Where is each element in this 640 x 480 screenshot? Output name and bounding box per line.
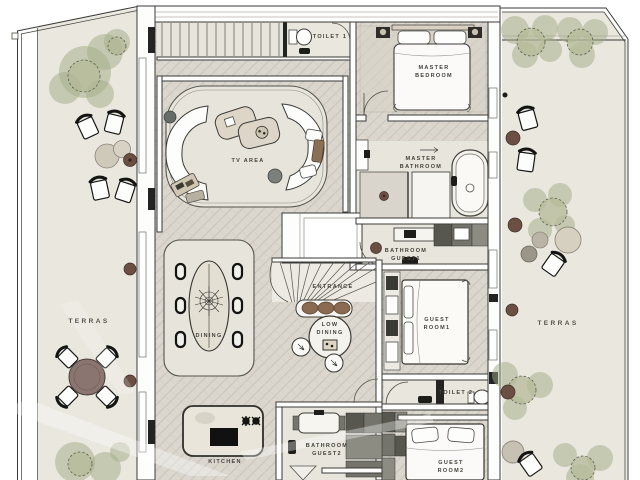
stool [521, 246, 537, 262]
master-bedroom-room [356, 25, 488, 121]
vanity [412, 172, 450, 220]
sink-counter [394, 228, 434, 241]
bed [402, 280, 470, 364]
entry-bench [296, 300, 352, 317]
nightstand [468, 27, 482, 38]
stool [268, 169, 282, 183]
shower [360, 172, 408, 220]
storage-closet [282, 213, 362, 263]
bed [406, 424, 484, 480]
planter-pot [506, 304, 518, 316]
stool [501, 385, 515, 399]
stool [506, 131, 520, 145]
stool [164, 111, 176, 123]
stool [508, 218, 522, 232]
bed-duvet [394, 44, 470, 110]
pillow [434, 31, 466, 44]
pillow [398, 31, 430, 44]
floor-plan-page: TOILET 1 MASTER BEDROOM TV AREA MASTER B… [0, 0, 640, 480]
sink-counter [293, 410, 345, 433]
bathtub [451, 150, 488, 216]
house [137, 6, 500, 480]
stool [532, 232, 548, 248]
headboard [392, 25, 474, 30]
terrace-right [492, 8, 628, 480]
planter-pot [124, 263, 136, 275]
kitchen-island [183, 406, 263, 456]
stool [371, 243, 382, 254]
dining-set [164, 240, 254, 376]
cooktop [210, 428, 238, 446]
nightstand [376, 27, 390, 38]
floor-plan-svg [0, 0, 640, 480]
side-table [555, 227, 581, 253]
